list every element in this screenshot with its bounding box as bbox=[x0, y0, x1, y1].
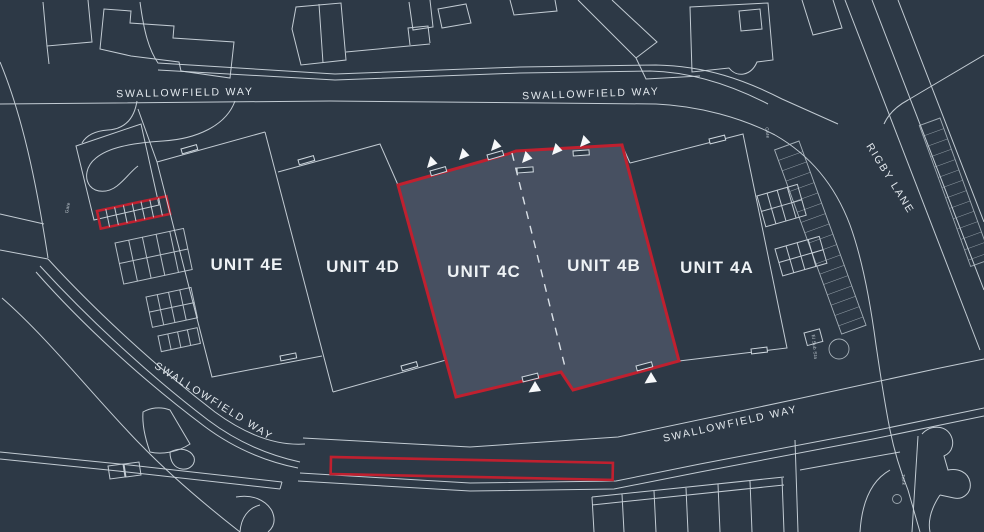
tank-label: Tank bbox=[901, 474, 907, 486]
door-notch bbox=[573, 150, 589, 156]
site-plan-canvas: SWALLOWFIELD WAY SWALLOWFIELD WAY SWALLO… bbox=[0, 0, 984, 532]
door-notch bbox=[517, 167, 533, 173]
unit-4b-label: UNIT 4B bbox=[567, 256, 641, 275]
unit-4c-label: UNIT 4C bbox=[447, 262, 521, 281]
site-plan: SWALLOWFIELD WAY SWALLOWFIELD WAY SWALLO… bbox=[0, 0, 984, 532]
unit-4a-label: UNIT 4A bbox=[680, 258, 754, 277]
unit-4e-label: UNIT 4E bbox=[211, 255, 284, 274]
street-label-swallowfield-way-top-left: SWALLOWFIELD WAY bbox=[116, 86, 254, 100]
unit-4d-label: UNIT 4D bbox=[326, 257, 400, 276]
